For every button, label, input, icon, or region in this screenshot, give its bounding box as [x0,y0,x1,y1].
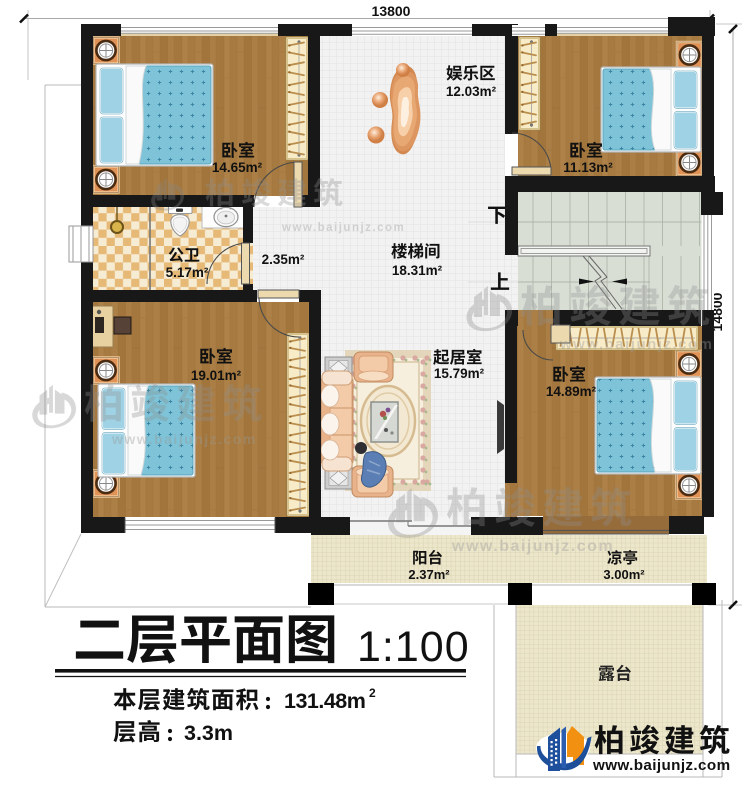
svg-text:5.17m²: 5.17m² [166,265,209,280]
svg-text:www.baijunjz.com: www.baijunjz.com [592,757,730,774]
svg-text:14.89m²: 14.89m² [546,384,597,399]
svg-text:www.baijunjz.com: www.baijunjz.com [111,431,257,447]
svg-text:13800: 13800 [372,3,411,19]
svg-text:3.00m²: 3.00m² [603,567,645,582]
svg-text:1:100: 1:100 [357,623,470,671]
svg-text:3.3m: 3.3m [184,721,233,745]
svg-text:19.01m²: 19.01m² [191,368,242,383]
svg-text:15.79m²: 15.79m² [434,366,485,381]
svg-text:2: 2 [369,686,376,700]
svg-text:www.baijunjz.com: www.baijunjz.com [281,222,405,234]
svg-text:18.31m²: 18.31m² [392,263,443,278]
svg-text:www.baijunjz.com: www.baijunjz.com [451,538,614,555]
svg-text:131.48m: 131.48m [284,689,365,713]
svg-text:2.37m²: 2.37m² [408,567,450,582]
svg-text:11.13m²: 11.13m² [563,160,613,175]
svg-text:12.03m²: 12.03m² [446,84,497,99]
svg-text:www.baijunjz.com: www.baijunjz.com [559,336,713,353]
svg-text:14.65m²: 14.65m² [212,160,263,175]
svg-text:2.35m²: 2.35m² [262,252,305,267]
